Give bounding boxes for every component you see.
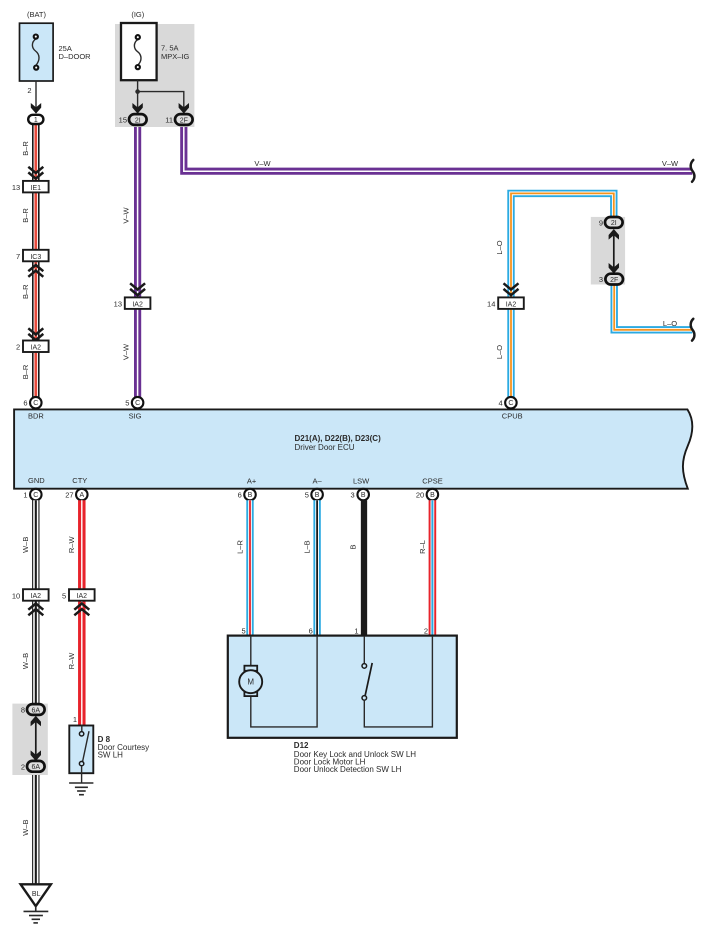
svg-text:3: 3 <box>599 275 603 284</box>
svg-text:13: 13 <box>114 300 122 309</box>
svg-text:7: 7 <box>16 252 20 261</box>
svg-text:6A: 6A <box>32 764 41 771</box>
svg-text:R–W: R–W <box>67 536 76 554</box>
svg-text:V–W: V–W <box>122 343 131 360</box>
svg-text:R–W: R–W <box>67 652 76 670</box>
svg-text:L–O: L–O <box>495 240 504 254</box>
svg-text:B: B <box>430 492 435 499</box>
svg-text:W–B: W–B <box>21 653 30 669</box>
svg-text:CPUB: CPUB <box>502 412 523 421</box>
svg-text:C: C <box>135 400 140 407</box>
svg-text:D12: D12 <box>294 741 309 750</box>
svg-text:5: 5 <box>305 490 309 499</box>
svg-text:2I: 2I <box>135 117 141 124</box>
svg-text:GND: GND <box>28 476 45 485</box>
svg-text:1: 1 <box>354 626 358 635</box>
svg-text:L–O: L–O <box>663 319 677 328</box>
svg-text:2I: 2I <box>611 220 617 227</box>
svg-text:8: 8 <box>21 706 25 715</box>
svg-text:6A: 6A <box>32 707 41 714</box>
svg-text:2: 2 <box>16 343 20 352</box>
svg-text:5: 5 <box>242 626 246 635</box>
svg-text:SIG: SIG <box>129 412 142 421</box>
svg-text:1: 1 <box>23 490 27 499</box>
svg-text:14: 14 <box>487 300 495 309</box>
svg-text:7. 5A: 7. 5A <box>161 43 179 52</box>
svg-text:2: 2 <box>424 626 428 635</box>
svg-text:4: 4 <box>499 399 503 408</box>
svg-text:IA2: IA2 <box>77 593 88 600</box>
svg-text:D–DOOR: D–DOOR <box>59 52 92 61</box>
svg-text:SW LH: SW LH <box>98 751 124 760</box>
svg-text:9: 9 <box>599 218 603 227</box>
svg-text:C: C <box>508 400 513 407</box>
svg-text:CTY: CTY <box>72 476 87 485</box>
svg-text:L–O: L–O <box>495 345 504 359</box>
svg-text:IC3: IC3 <box>30 254 41 261</box>
svg-text:(IG): (IG) <box>131 10 144 19</box>
svg-text:B–R: B–R <box>21 284 30 299</box>
svg-text:W–B: W–B <box>21 819 30 835</box>
svg-text:D21(A), D22(B), D23(C): D21(A), D22(B), D23(C) <box>295 434 382 443</box>
svg-text:2: 2 <box>21 762 25 771</box>
svg-text:IA2: IA2 <box>132 301 143 308</box>
svg-text:6: 6 <box>309 626 313 635</box>
svg-text:V–W: V–W <box>122 206 131 223</box>
svg-text:B: B <box>348 544 357 549</box>
svg-text:IA2: IA2 <box>506 301 517 308</box>
svg-text:A: A <box>79 492 84 499</box>
svg-text:C: C <box>33 400 38 407</box>
svg-text:Door Unlock Detection SW LH: Door Unlock Detection SW LH <box>294 765 402 774</box>
svg-text:V–W: V–W <box>254 159 271 168</box>
svg-text:M: M <box>247 678 254 687</box>
svg-text:6: 6 <box>23 399 27 408</box>
svg-text:C: C <box>33 492 38 499</box>
svg-text:B–R: B–R <box>21 364 30 379</box>
svg-text:LSW: LSW <box>353 476 370 485</box>
svg-text:1: 1 <box>73 715 77 724</box>
svg-text:B: B <box>361 492 366 499</box>
svg-text:20: 20 <box>416 490 424 499</box>
svg-text:13: 13 <box>12 183 20 192</box>
svg-text:2F: 2F <box>610 277 618 284</box>
svg-text:5: 5 <box>62 591 66 600</box>
svg-text:A+: A+ <box>247 476 257 485</box>
svg-text:2F: 2F <box>180 117 188 124</box>
svg-text:2: 2 <box>27 86 31 95</box>
svg-text:27: 27 <box>65 490 73 499</box>
svg-text:IE1: IE1 <box>31 185 42 192</box>
svg-text:B: B <box>248 492 253 499</box>
svg-text:L–B: L–B <box>303 540 312 553</box>
svg-text:A–: A– <box>313 476 323 485</box>
svg-text:BL: BL <box>32 891 41 898</box>
svg-text:L–R: L–R <box>235 540 244 554</box>
svg-text:B–R: B–R <box>21 141 30 156</box>
svg-text:Driver Door ECU: Driver Door ECU <box>295 443 355 452</box>
svg-text:R–L: R–L <box>418 540 427 554</box>
svg-text:V–W: V–W <box>662 159 679 168</box>
svg-text:15: 15 <box>119 115 127 124</box>
svg-text:BDR: BDR <box>28 412 44 421</box>
svg-text:MPX–IG: MPX–IG <box>161 52 190 61</box>
svg-text:5: 5 <box>125 399 129 408</box>
svg-text:CPSE: CPSE <box>422 476 442 485</box>
svg-text:10: 10 <box>12 591 20 600</box>
svg-text:11: 11 <box>165 115 173 124</box>
svg-text:B: B <box>315 492 320 499</box>
svg-text:(BAT): (BAT) <box>27 10 47 19</box>
svg-text:IA2: IA2 <box>31 593 42 600</box>
svg-text:6: 6 <box>238 490 242 499</box>
svg-text:IA2: IA2 <box>31 345 42 352</box>
svg-text:B–R: B–R <box>21 208 30 223</box>
svg-text:3: 3 <box>351 490 355 499</box>
svg-text:1: 1 <box>34 117 38 124</box>
svg-text:W–B: W–B <box>21 537 30 553</box>
